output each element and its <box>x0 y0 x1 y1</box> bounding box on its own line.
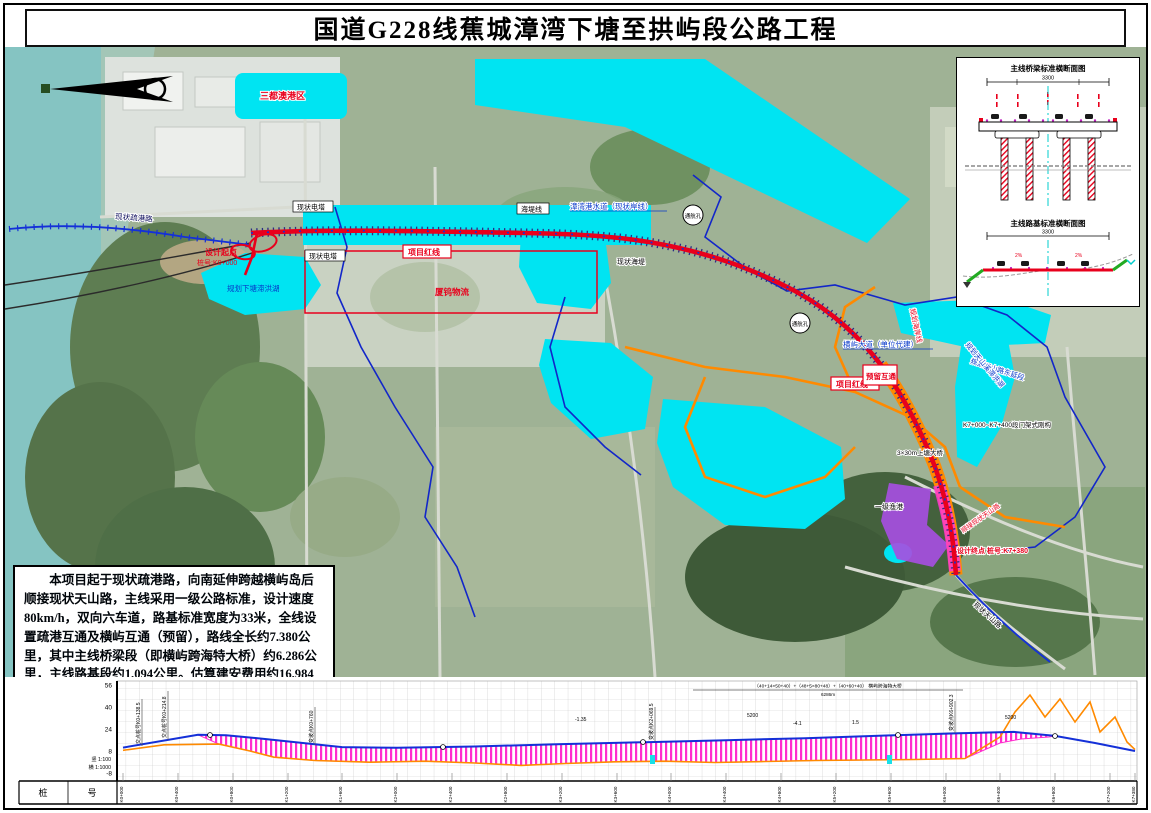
label-start-station: 桩号:K0+000 <box>197 258 237 267</box>
svg-text:8: 8 <box>108 749 112 756</box>
svg-text:K0+800: K0+800 <box>229 786 234 802</box>
svg-text:-1.35: -1.35 <box>575 717 587 723</box>
page-title: 国道G228线蕉城漳湾下塘至拱屿段公路工程 <box>314 10 838 46</box>
roadbed-width-dim: 3300 <box>1042 230 1054 236</box>
svg-text:交点桩号K0+138.5: 交点桩号K0+138.5 <box>135 702 142 744</box>
svg-text:K0+400: K0+400 <box>174 786 179 802</box>
bridge-width-dim: 3300 <box>1042 76 1054 82</box>
label-reserved-ic: 预留互通 <box>866 371 896 381</box>
svg-text:5200: 5200 <box>1005 715 1016 721</box>
roadbed-drawing: 2% 2% <box>963 253 1135 288</box>
nav-span-label: 通航孔 <box>685 212 702 220</box>
svg-text:变坡点K2+069.5: 变坡点K2+069.5 <box>648 703 655 740</box>
label-port-area: 三都澳港区 <box>260 90 305 101</box>
label-end: 设计终点 桩号:K7+380 <box>957 546 1028 555</box>
svg-text:K4+800: K4+800 <box>777 786 782 802</box>
svg-text:K2+000: K2+000 <box>393 786 398 802</box>
label-start: 设计起点 <box>205 247 237 257</box>
drawing-sheet: 国道G228线蕉城漳湾下塘至拱屿段公路工程 <box>0 0 1151 813</box>
svg-text:56: 56 <box>105 683 113 690</box>
svg-text:交点桩号K0+214.8: 交点桩号K0+214.8 <box>161 696 168 738</box>
svg-text:40: 40 <box>105 705 113 712</box>
svg-text:K2+800: K2+800 <box>503 786 508 802</box>
profile-grid <box>117 681 1137 781</box>
sheet-frame: 国道G228线蕉城漳湾下塘至拱屿段公路工程 <box>3 3 1148 810</box>
svg-text:变坡点K6+902.3: 变坡点K6+902.3 <box>948 694 955 731</box>
svg-text:K2+400: K2+400 <box>448 786 453 802</box>
svg-text:24: 24 <box>105 727 113 734</box>
label-seawall-line: 海堤线 <box>521 205 542 214</box>
svg-text:K3+600: K3+600 <box>613 786 618 802</box>
label-tower1: 现状电塔 <box>297 203 325 212</box>
label-fishing-port: 一级渔港 <box>875 502 903 511</box>
bridge-span-note: （40+14×50+40）+（48+5×80+48）+（40+60+40） 横屿… <box>754 683 902 690</box>
grade-left-label: 2% <box>1015 253 1023 259</box>
svg-text:K6+800: K6+800 <box>1051 786 1056 802</box>
svg-text:K3+200: K3+200 <box>558 786 563 802</box>
label-rigid-frame: K7+000~K7+400段门架式刚构 <box>963 420 1051 429</box>
nav-span-label: 通航孔 <box>792 320 809 328</box>
longitudinal-profile: 56 40 24 8 -8 竖 1:100 横 1:1000 （40+14×50… <box>5 677 1146 807</box>
svg-text:K1+200: K1+200 <box>284 786 289 802</box>
svg-text:K1+600: K1+600 <box>338 786 343 802</box>
label-logistics: 厦钨物流 <box>435 287 470 297</box>
label-seawall: 现状海堤 <box>617 257 645 266</box>
label-shangtang-bridge: 3×30m上塘大桥 <box>897 448 944 457</box>
label-channel: 漳湾港水道（现状岸线） <box>570 201 653 211</box>
bridge-section-title: 主线桥梁标准横断面图 <box>1011 63 1086 73</box>
route-map: 通航孔 通航孔 三都澳港区 现状疏港路 设计起点 桩号:K0+000 规划下塘滞… <box>5 47 1146 677</box>
label-hengyu-ave: 横屿大道（单位代建） <box>843 339 918 349</box>
label-tower2: 现状电塔 <box>309 252 337 261</box>
bridge-length: 6286m <box>821 692 835 697</box>
svg-text:K7+200: K7+200 <box>1106 786 1111 802</box>
label-redline1: 项目红线 <box>408 247 440 257</box>
svg-text:K5+200: K5+200 <box>832 786 837 802</box>
svg-text:K7+380: K7+380 <box>1131 786 1136 802</box>
svg-text:-8: -8 <box>106 771 112 778</box>
roadbed-section-title: 主线路基标准横断面图 <box>1011 218 1086 228</box>
nav-span-marker <box>650 755 655 764</box>
svg-text:K6+400: K6+400 <box>996 786 1001 802</box>
nav-span-marker <box>887 755 892 764</box>
svg-text:5200: 5200 <box>747 713 758 719</box>
label-lake-xiatang: 规划下塘滞洪湖 <box>227 283 280 293</box>
cross-section-svg: 主线桥梁标准横断面图 3300 <box>957 58 1139 306</box>
svg-text:K0+000: K0+000 <box>119 786 124 802</box>
row-cell-1: 桩 <box>38 787 47 798</box>
y-tick-labels: 56 40 24 8 -8 <box>105 683 113 778</box>
svg-text:K4+000: K4+000 <box>667 786 672 802</box>
scale-vertical: 竖 1:100 <box>91 755 111 763</box>
station-labels: K0+000 K0+400 K0+800 K1+200 K1+600 K2+00… <box>119 786 1136 802</box>
svg-text:K5+600: K5+600 <box>887 786 892 802</box>
svg-text:变坡点K0+760: 变坡点K0+760 <box>308 710 315 743</box>
cross-section-inset: 主线桥梁标准横断面图 3300 <box>956 57 1140 307</box>
title-bar: 国道G228线蕉城漳湾下塘至拱屿段公路工程 <box>25 9 1126 47</box>
scale-horizontal: 横 1:1000 <box>89 763 112 771</box>
svg-text:1.5: 1.5 <box>852 720 859 726</box>
svg-text:K4+400: K4+400 <box>722 786 727 802</box>
fields-center <box>435 427 655 607</box>
project-description-box: 本项目起于现状疏港路，向南延伸跨越横屿岛后顺接现状天山路，主线采用一级公路标准，… <box>13 565 335 677</box>
row-cell-2: 号 <box>87 788 96 798</box>
grade-right-label: 2% <box>1075 253 1083 259</box>
svg-text:K6+000: K6+000 <box>942 786 947 802</box>
profile-svg: 56 40 24 8 -8 竖 1:100 横 1:1000 （40+14×50… <box>5 677 1146 807</box>
project-description: 本项目起于现状疏港路，向南延伸跨越横屿岛后顺接现状天山路，主线采用一级公路标准，… <box>24 571 324 677</box>
svg-text:-4.1: -4.1 <box>793 721 802 727</box>
